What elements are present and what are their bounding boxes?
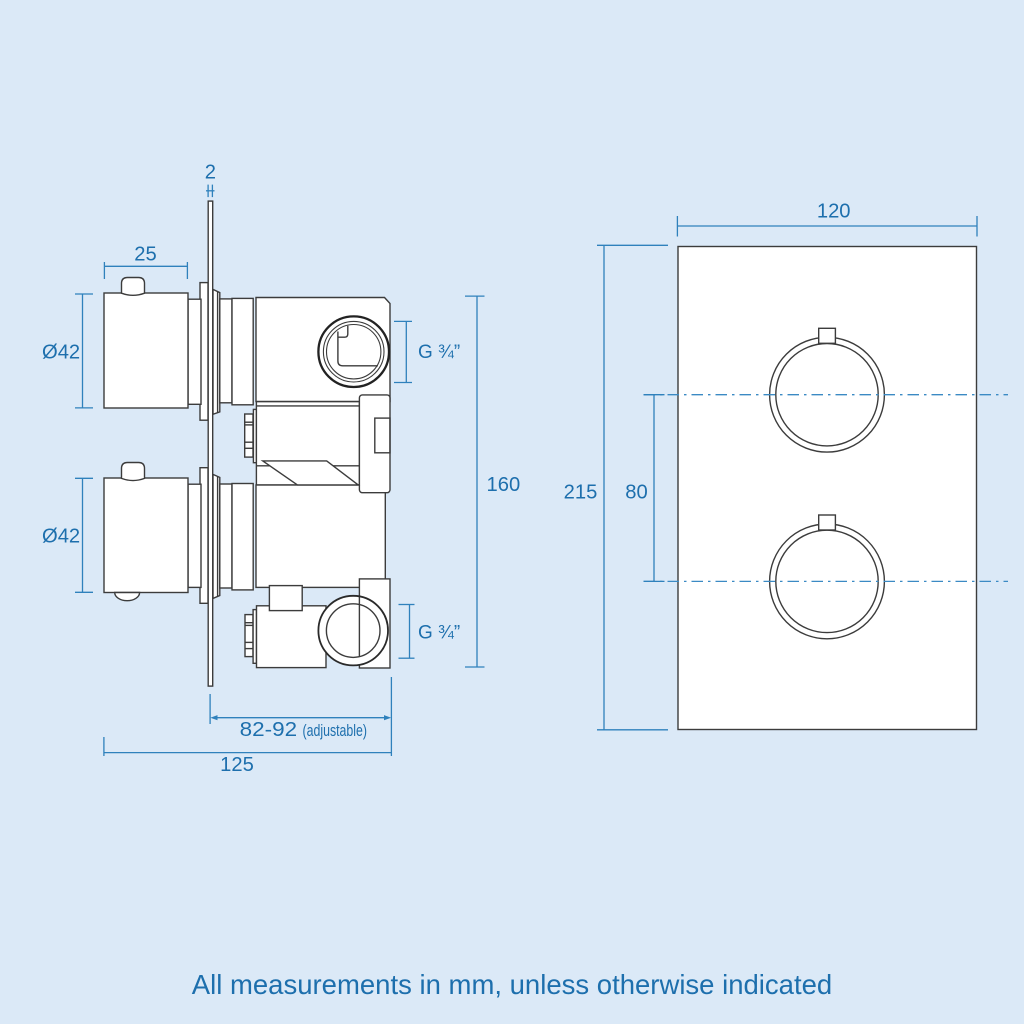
svg-text:125: 125 xyxy=(220,754,254,776)
svg-text:Ø42: Ø42 xyxy=(42,342,80,364)
svg-text:160: 160 xyxy=(487,474,521,496)
svg-text:2: 2 xyxy=(205,162,216,184)
svg-text:25: 25 xyxy=(134,244,156,266)
svg-text:G ¾”: G ¾” xyxy=(418,623,460,644)
svg-text:80: 80 xyxy=(625,482,647,504)
svg-text:215: 215 xyxy=(564,482,598,504)
svg-text:120: 120 xyxy=(817,201,851,223)
svg-text:G ¾”: G ¾” xyxy=(418,342,460,363)
svg-text:(adjustable): (adjustable) xyxy=(303,722,368,740)
svg-text:Ø42: Ø42 xyxy=(42,526,80,548)
svg-text:82-92: 82-92 xyxy=(240,719,298,741)
svg-text:All measurements in mm, unless: All measurements in mm, unless otherwise… xyxy=(192,969,832,1000)
